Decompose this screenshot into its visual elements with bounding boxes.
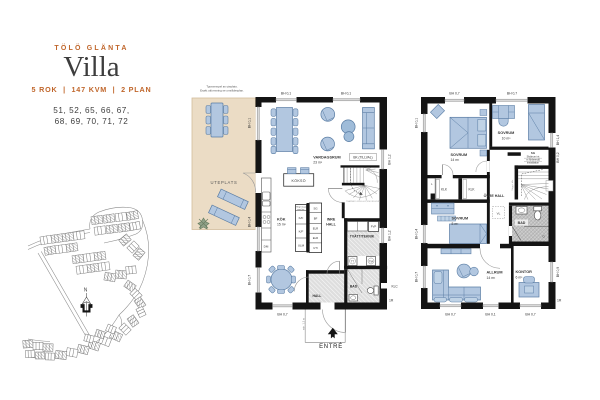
svg-text:UTI: UTI bbox=[313, 246, 318, 250]
svg-text:TVÄTT/TEKNIK: TVÄTT/TEKNIK bbox=[350, 235, 375, 239]
svg-text:BH 0,4: BH 0,4 bbox=[415, 229, 419, 239]
svg-text:10 m²: 10 m² bbox=[502, 136, 512, 140]
svg-text:Vägg t. tillv.: Vägg t. tillv. bbox=[511, 179, 514, 191]
svg-text:KLK: KLK bbox=[468, 187, 475, 191]
svg-text:1R: 1R bbox=[557, 299, 562, 303]
svg-text:KONTOR: KONTOR bbox=[516, 270, 533, 274]
svg-text:23 m²: 23 m² bbox=[313, 160, 323, 164]
svg-text:FVP: FVP bbox=[371, 225, 377, 229]
svg-text:BH 0,1: BH 0,1 bbox=[341, 92, 351, 96]
svg-text:HALL: HALL bbox=[312, 294, 321, 298]
svg-text:min. 1,3 m: min. 1,3 m bbox=[302, 318, 306, 330]
svg-text:K/F: K/F bbox=[299, 230, 304, 234]
svg-text:med inr.: med inr. bbox=[297, 208, 305, 211]
svg-text:TRAPPA 15 STEG H 2,3 M FRI HÖJ: TRAPPA 15 STEG H 2,3 M FRI HÖJD bbox=[346, 200, 380, 203]
svg-text:BH 0,7: BH 0,7 bbox=[277, 313, 287, 317]
svg-text:K/F: K/F bbox=[299, 216, 304, 220]
svg-text:SG: SG bbox=[313, 207, 317, 211]
svg-text:BK (TILLVAL): BK (TILLVAL) bbox=[353, 155, 372, 159]
svg-text:BH 0,7: BH 0,7 bbox=[525, 313, 535, 317]
svg-text:6 m²: 6 m² bbox=[516, 275, 524, 279]
svg-text:BH 0,1: BH 0,1 bbox=[485, 313, 495, 317]
svg-text:14 m²: 14 m² bbox=[451, 158, 461, 162]
svg-text:BH 0,1: BH 0,1 bbox=[415, 118, 419, 128]
svg-text:ALLRUM: ALLRUM bbox=[487, 271, 503, 275]
svg-text:KLC: KLC bbox=[392, 285, 399, 289]
svg-text:1R: 1R bbox=[389, 299, 394, 303]
svg-text:BH 0,7: BH 0,7 bbox=[507, 92, 517, 96]
svg-text:14 m²: 14 m² bbox=[487, 276, 497, 280]
svg-text:ELR: ELR bbox=[313, 227, 318, 231]
svg-text:15 m²: 15 m² bbox=[277, 223, 287, 227]
svg-text:Exakt utformning se områdespla: Exakt utformning se områdesplan. bbox=[200, 89, 244, 93]
svg-text:VL: VL bbox=[497, 212, 501, 216]
svg-text:BH 0,9: BH 0,9 bbox=[556, 267, 560, 277]
svg-text:BH 0,7: BH 0,7 bbox=[415, 272, 419, 282]
svg-text:SOVRUM: SOVRUM bbox=[452, 217, 469, 221]
svg-text:BH 0,7: BH 0,7 bbox=[449, 92, 459, 96]
svg-text:ULM: ULM bbox=[298, 244, 305, 248]
svg-text:BH 0,1: BH 0,1 bbox=[248, 118, 252, 128]
svg-text:UTEPLATS: UTEPLATS bbox=[211, 180, 238, 185]
svg-text:TT: TT bbox=[351, 259, 355, 263]
svg-text:TM: TM bbox=[369, 259, 374, 263]
svg-text:8 m²: 8 m² bbox=[452, 222, 460, 226]
svg-text:SOVRUM: SOVRUM bbox=[498, 131, 515, 135]
svg-text:KÖK: KÖK bbox=[277, 217, 286, 222]
svg-text:BF: BF bbox=[314, 217, 318, 221]
svg-text:BH 0,2: BH 0,2 bbox=[556, 152, 560, 162]
svg-text:SOVRUM: SOVRUM bbox=[451, 153, 468, 157]
svg-text:BH 0,7: BH 0,7 bbox=[445, 313, 455, 317]
svg-text:VARDAGSRUM: VARDAGSRUM bbox=[313, 155, 340, 159]
svg-text:HALL: HALL bbox=[326, 223, 336, 227]
svg-text:KLK: KLK bbox=[441, 187, 448, 191]
svg-text:N: N bbox=[84, 288, 88, 294]
svg-text:ÖVRE HALL: ÖVRE HALL bbox=[484, 193, 506, 198]
svg-text:BH 1,2: BH 1,2 bbox=[388, 230, 392, 240]
svg-text:BH 0,1: BH 0,1 bbox=[281, 92, 291, 96]
svg-text:installation: installation bbox=[527, 162, 539, 165]
svg-text:KÖKSÖ: KÖKSÖ bbox=[292, 179, 306, 183]
svg-text:ENTRÉ: ENTRÉ bbox=[319, 343, 343, 350]
svg-text:BH 0,4: BH 0,4 bbox=[248, 217, 252, 227]
svg-text:BH 0,7: BH 0,7 bbox=[248, 275, 252, 285]
svg-text:BH 1,2: BH 1,2 bbox=[388, 154, 392, 164]
svg-text:INRE: INRE bbox=[327, 218, 336, 222]
svg-text:ELR: ELR bbox=[313, 236, 318, 240]
svg-text:DM: DM bbox=[264, 245, 269, 249]
svg-text:BAD: BAD bbox=[518, 221, 526, 225]
svg-text:BH 1,4: BH 1,4 bbox=[556, 135, 560, 145]
svg-text:BAD: BAD bbox=[350, 285, 358, 289]
